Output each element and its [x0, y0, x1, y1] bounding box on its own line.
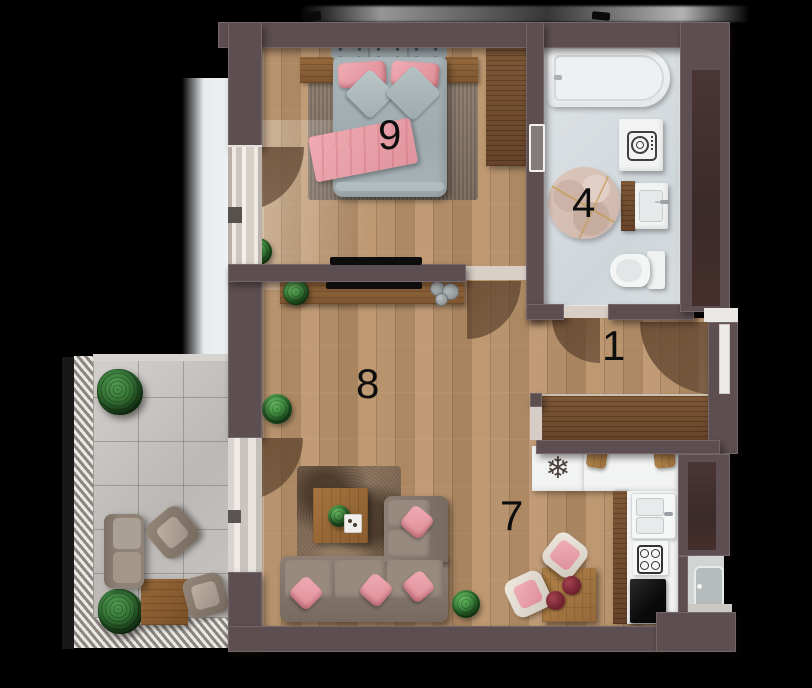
bathtub	[548, 49, 670, 107]
balcony-door-opening	[228, 438, 262, 572]
wall-top	[218, 22, 730, 48]
nightstand-right	[445, 57, 478, 83]
floor-plan: 9 4 8	[0, 0, 812, 688]
balcony-bush-top	[97, 369, 143, 415]
dining-plate-2	[546, 591, 565, 610]
kitchen-sink	[631, 493, 676, 539]
stove-burners-icon	[637, 545, 663, 574]
shaft-panel-kitchen	[688, 462, 716, 550]
kitchen-faucet	[664, 512, 673, 516]
balcony-top-edge	[93, 354, 228, 361]
top-sheen	[300, 6, 750, 22]
room-label-lounge: 7	[500, 495, 523, 537]
wall-bedroom-living-divider	[228, 264, 466, 282]
balcony-outer-shadow	[62, 357, 74, 649]
wardrobe	[486, 48, 526, 166]
living-room-plant	[262, 394, 292, 424]
washing-machine	[619, 119, 663, 171]
bathroom-door-threshold	[564, 306, 608, 318]
wall-bathroom-bottom-left	[526, 304, 564, 320]
kitchen-sink-basin-1	[636, 498, 664, 516]
toilet-bowl	[610, 254, 650, 287]
shaft-panel-upper	[692, 70, 720, 306]
coffee-table-tray	[344, 514, 362, 533]
wall-left-mid	[228, 266, 262, 438]
balcony-bush-bottom	[98, 589, 143, 634]
window-sill-mark	[228, 207, 242, 223]
entrance-door-leaf	[719, 324, 730, 394]
sideboard-tv	[326, 282, 422, 289]
kitchen-sink-basin-2	[636, 517, 664, 534]
room-label-bathroom: 4	[572, 182, 595, 224]
wall-bottom	[228, 626, 660, 652]
dining-plate-1	[562, 576, 581, 595]
bedroom-tv	[330, 257, 422, 265]
wall-bottom-right-block	[656, 612, 736, 652]
entrance-threshold	[704, 308, 738, 322]
room-label-living: 8	[356, 363, 379, 405]
balcony-railing-left	[74, 356, 93, 648]
outdoor-table	[141, 579, 188, 625]
nightstand-left	[300, 57, 333, 83]
washing-machine-icon	[627, 131, 657, 161]
bathtub-basin	[554, 55, 664, 101]
decor-vase-3	[435, 293, 448, 306]
window-light-glow	[182, 78, 230, 368]
lounge-plant	[452, 590, 480, 618]
bottom-right-step	[688, 604, 732, 612]
bathroom-sink	[635, 183, 668, 229]
room-label-bedroom: 9	[378, 114, 401, 156]
bathroom-wall-door-panel	[529, 124, 545, 172]
vanity-cabinet	[621, 181, 635, 231]
bathtub-faucet-icon	[554, 75, 562, 80]
bathroom-sink-basin	[639, 190, 663, 222]
hallway-cabinet	[542, 394, 718, 442]
toilet	[610, 250, 665, 290]
bed-foot-fold	[336, 182, 444, 191]
dimension-tick-right	[592, 11, 611, 21]
wall-left-upper	[228, 22, 262, 148]
stub-threshold	[530, 407, 542, 440]
room-label-hallway: 1	[602, 325, 625, 367]
sideboard-plant	[283, 279, 309, 305]
bathroom-faucet	[660, 200, 670, 204]
bedroom-door-threshold	[466, 266, 526, 280]
wall-below-cabinet	[536, 440, 720, 454]
kitchen-side-panel	[613, 491, 627, 624]
outdoor-sofa	[104, 514, 144, 588]
balcony-door-handle	[228, 510, 241, 523]
wall-stub-kitchen-left	[530, 393, 542, 407]
snowflake-icon: ❄	[545, 454, 570, 484]
stove	[633, 541, 668, 575]
